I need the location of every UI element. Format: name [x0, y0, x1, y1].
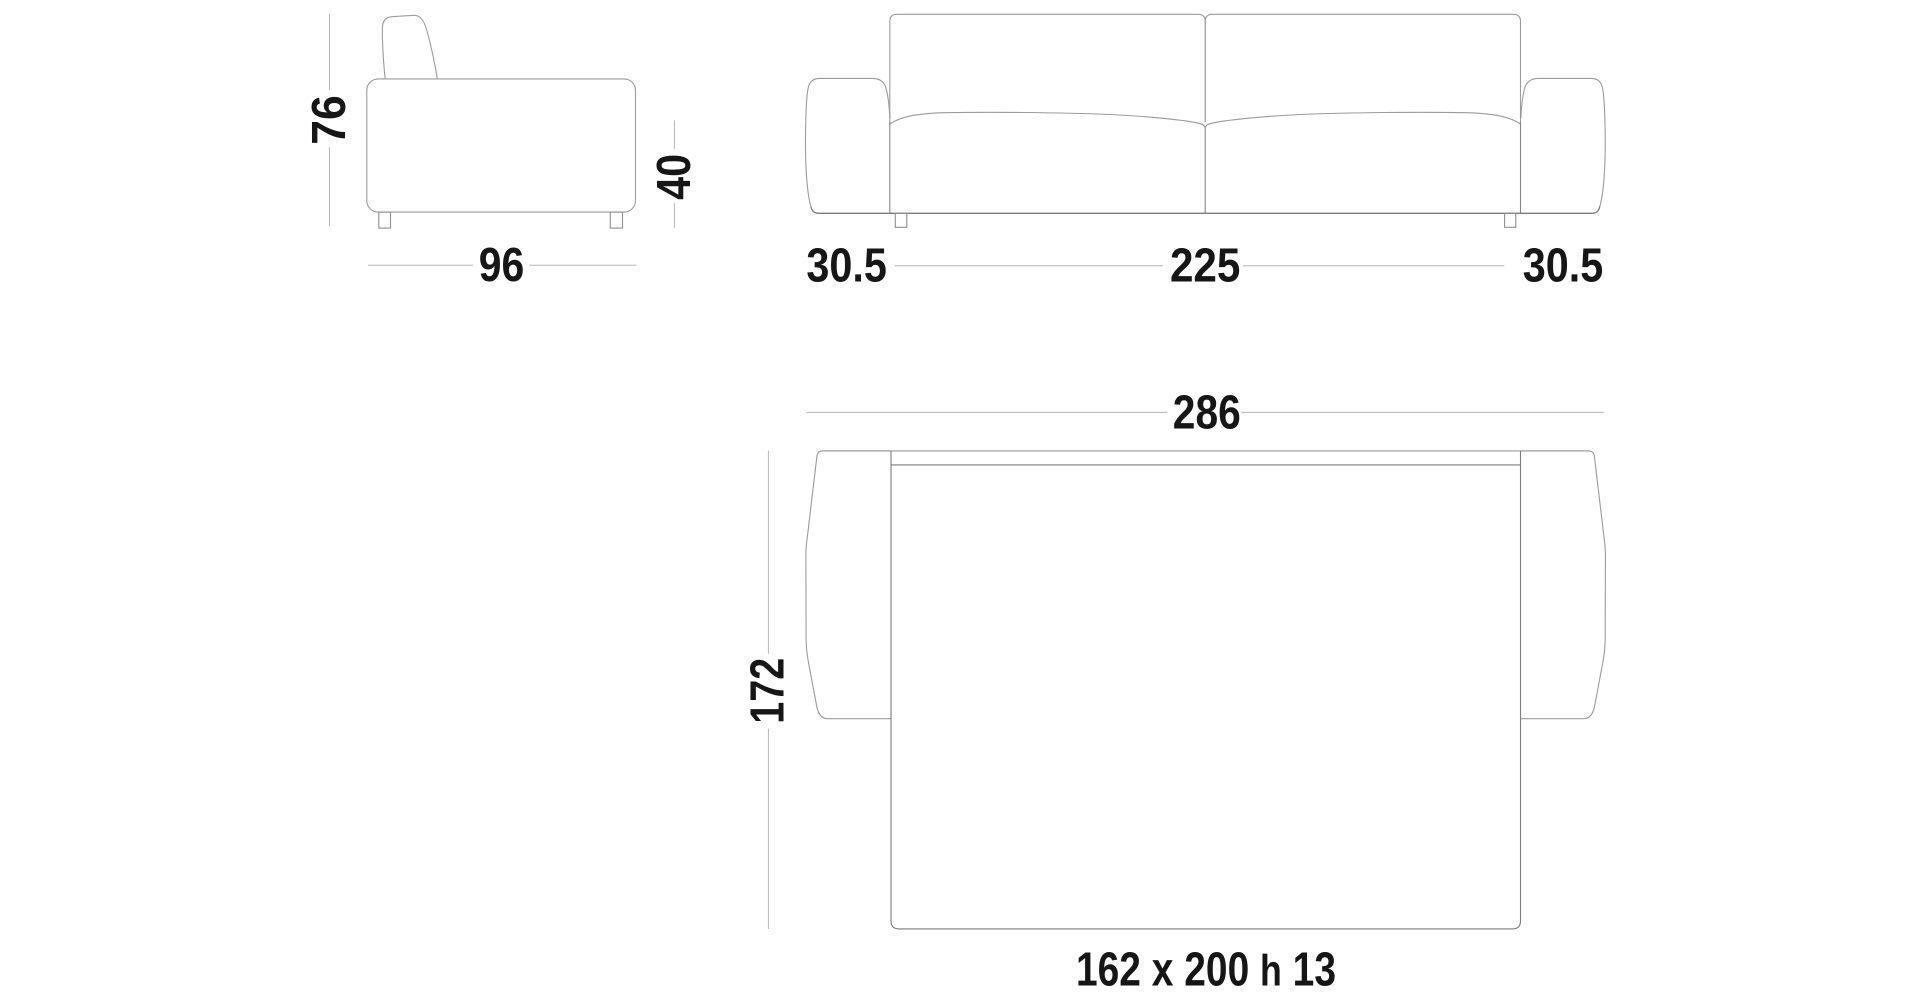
svg-text:40: 40: [648, 154, 701, 200]
svg-text:30.5: 30.5: [806, 239, 887, 292]
svg-text:286: 286: [1173, 387, 1241, 440]
svg-text:76: 76: [303, 95, 356, 145]
svg-text:96: 96: [479, 239, 525, 292]
svg-text:162 x 200 h 13: 162 x 200 h 13: [1076, 943, 1336, 996]
svg-text:30.5: 30.5: [1523, 239, 1604, 292]
svg-text:172: 172: [742, 658, 795, 724]
svg-text:225: 225: [1170, 239, 1241, 292]
